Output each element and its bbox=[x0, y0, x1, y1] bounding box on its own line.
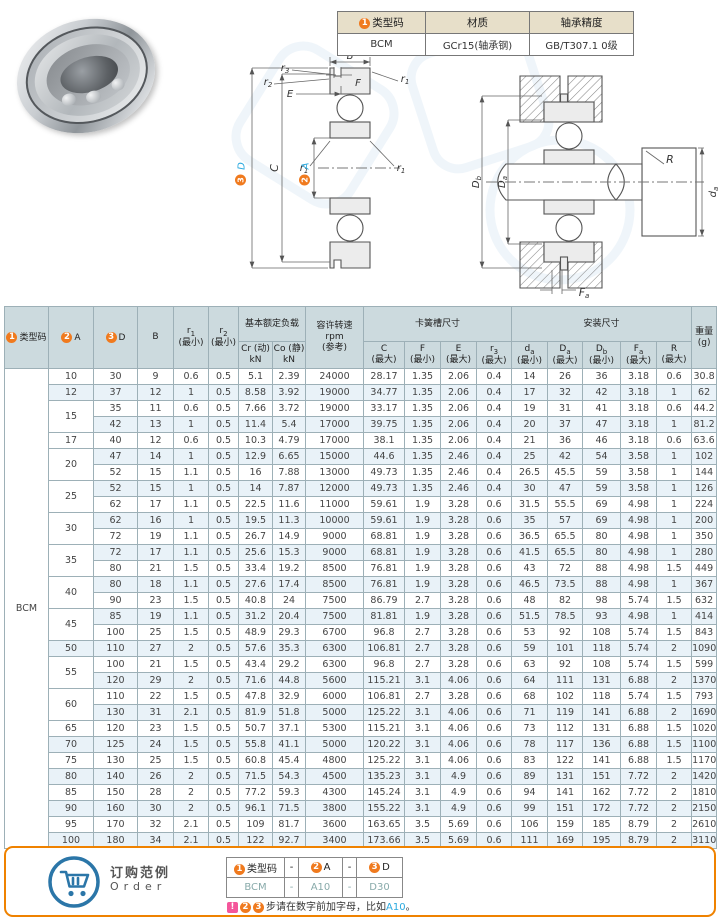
cell: 0.5 bbox=[209, 561, 239, 577]
cell: 0.4 bbox=[477, 417, 512, 433]
cell: 2150 bbox=[692, 801, 717, 817]
cell: 3600 bbox=[306, 817, 364, 833]
cell: 1 bbox=[657, 481, 692, 497]
order-value-dash: - bbox=[343, 878, 357, 898]
cell: 0.6 bbox=[477, 513, 512, 529]
cell: 1.5 bbox=[174, 689, 209, 705]
cell-a: 55 bbox=[49, 657, 94, 689]
col-header-f: F(最小) bbox=[405, 342, 441, 369]
cell: 1.9 bbox=[405, 513, 441, 529]
cell: 73.5 bbox=[548, 577, 583, 593]
cell: 47.8 bbox=[239, 689, 273, 705]
order-header-dash: - bbox=[285, 858, 299, 878]
badge-1-icon: 1 bbox=[359, 18, 370, 29]
spec-table-body: BCM103090.60.55.12.392400028.171.352.060… bbox=[5, 369, 717, 849]
cell: 0.5 bbox=[209, 433, 239, 449]
cell: 85 bbox=[94, 609, 138, 625]
info-header-material: 材质 bbox=[426, 12, 530, 34]
cell: 12 bbox=[138, 433, 174, 449]
cell: 72 bbox=[548, 561, 583, 577]
cell: 33.17 bbox=[364, 401, 405, 417]
cell: 43 bbox=[512, 561, 548, 577]
cell: 0.6 bbox=[657, 401, 692, 417]
cell: 0.5 bbox=[209, 737, 239, 753]
cell: 1.35 bbox=[405, 465, 441, 481]
svg-text:A: A bbox=[301, 162, 312, 170]
cell: 19000 bbox=[306, 385, 364, 401]
cell: 8.58 bbox=[239, 385, 273, 401]
dim-r1-label: r1 bbox=[401, 74, 410, 86]
cell: 350 bbox=[692, 529, 717, 545]
cell: 1690 bbox=[692, 705, 717, 721]
cell-a: 40 bbox=[49, 577, 94, 609]
order-value-code: BCM bbox=[227, 878, 285, 898]
order-panel: 订购范例 Order 1类型码 - 2A - 3D BCM - A10 - D3… bbox=[4, 846, 716, 917]
cell: 81.7 bbox=[273, 817, 306, 833]
cell-a: 80 bbox=[49, 769, 94, 785]
cell: 12.9 bbox=[239, 449, 273, 465]
cell: 92 bbox=[548, 657, 583, 673]
cell: 5.1 bbox=[239, 369, 273, 385]
cell: 0.5 bbox=[209, 385, 239, 401]
cell: 125 bbox=[94, 737, 138, 753]
cell: 54 bbox=[583, 449, 621, 465]
table-row: 52151.10.5167.881300049.731.352.460.426.… bbox=[5, 465, 717, 481]
cell: 10000 bbox=[306, 513, 364, 529]
cell: 1.1 bbox=[174, 577, 209, 593]
cell: 0.6 bbox=[477, 705, 512, 721]
table-row: 30621610.519.511.31000059.611.93.280.635… bbox=[5, 513, 717, 529]
cell: 17.4 bbox=[273, 577, 306, 593]
cell: 6.88 bbox=[621, 721, 657, 737]
badge-2-icon: 2 bbox=[240, 902, 251, 913]
cell: 30 bbox=[94, 369, 138, 385]
order-title-cn: 订购范例 bbox=[110, 862, 170, 881]
cell: 41 bbox=[583, 401, 621, 417]
cell: 131 bbox=[583, 721, 621, 737]
cell: 55.8 bbox=[239, 737, 273, 753]
cell: 0.6 bbox=[477, 593, 512, 609]
order-title-en: Order bbox=[110, 880, 166, 893]
table-row: 65120231.50.550.737.15300115.213.14.060.… bbox=[5, 721, 717, 737]
cell: 0.6 bbox=[657, 369, 692, 385]
cell: 1.5 bbox=[657, 753, 692, 769]
cell-a: 95 bbox=[49, 817, 94, 833]
cell: 22.5 bbox=[239, 497, 273, 513]
cell: 7.87 bbox=[273, 481, 306, 497]
cell: 53 bbox=[512, 625, 548, 641]
cell: 1 bbox=[174, 481, 209, 497]
cell: 27 bbox=[138, 641, 174, 657]
cell: 78.5 bbox=[548, 609, 583, 625]
cell: 130 bbox=[94, 753, 138, 769]
cell: 2.7 bbox=[405, 593, 441, 609]
table-row: 20471410.512.96.651500044.61.352.460.425… bbox=[5, 449, 717, 465]
cell: 92 bbox=[548, 625, 583, 641]
cell: 86.79 bbox=[364, 593, 405, 609]
cell: 80 bbox=[94, 577, 138, 593]
col-header-d: 3D bbox=[94, 307, 138, 369]
cell: 0.6 bbox=[477, 801, 512, 817]
cell: 2.7 bbox=[405, 689, 441, 705]
cell: 0.5 bbox=[209, 465, 239, 481]
cell: 4.06 bbox=[441, 753, 477, 769]
cell: 1.5 bbox=[657, 689, 692, 705]
cell: 57 bbox=[548, 513, 583, 529]
cell: 1.9 bbox=[405, 529, 441, 545]
cell-a: 25 bbox=[49, 481, 94, 513]
cell: 1.5 bbox=[657, 721, 692, 737]
cell: 6.88 bbox=[621, 737, 657, 753]
cell: 69 bbox=[583, 497, 621, 513]
cell: 125.22 bbox=[364, 753, 405, 769]
cell: 1 bbox=[174, 513, 209, 529]
cell: 2.39 bbox=[273, 369, 306, 385]
cell: 18 bbox=[138, 577, 174, 593]
table-row: 1740120.60.510.34.791700038.11.352.060.4… bbox=[5, 433, 717, 449]
cell: 6.88 bbox=[621, 753, 657, 769]
table-row: 421310.511.45.41700039.751.352.060.42037… bbox=[5, 417, 717, 433]
cell: 2 bbox=[174, 641, 209, 657]
cell: 48.9 bbox=[239, 625, 273, 641]
cell: 3.1 bbox=[405, 769, 441, 785]
cell: 1.5 bbox=[657, 737, 692, 753]
cell: 8500 bbox=[306, 561, 364, 577]
cell: 170 bbox=[94, 817, 138, 833]
cell: 36 bbox=[548, 433, 583, 449]
table-row: 130312.10.581.951.85000125.223.14.060.67… bbox=[5, 705, 717, 721]
badge-3-icon: 3 bbox=[369, 862, 380, 873]
cell: 1 bbox=[174, 449, 209, 465]
cell: 34.77 bbox=[364, 385, 405, 401]
cell: 3.5 bbox=[405, 817, 441, 833]
cell: 1.5 bbox=[657, 561, 692, 577]
cell: 0.6 bbox=[477, 721, 512, 737]
cell: 45.4 bbox=[273, 753, 306, 769]
cross-section-diagram: B F E r3 r2 r1 r1 r1 C 2 A 3 D bbox=[230, 50, 465, 300]
cell: 145.24 bbox=[364, 785, 405, 801]
cell: 0.6 bbox=[657, 433, 692, 449]
cell: 41.1 bbox=[273, 737, 306, 753]
cell: 76.81 bbox=[364, 577, 405, 593]
cell: 100 bbox=[94, 625, 138, 641]
cell: 5.4 bbox=[273, 417, 306, 433]
cell: 42 bbox=[583, 385, 621, 401]
cell: 59.61 bbox=[364, 513, 405, 529]
cell: 24 bbox=[138, 737, 174, 753]
cell: 0.5 bbox=[209, 593, 239, 609]
cell: 68.81 bbox=[364, 529, 405, 545]
cell-a: 90 bbox=[49, 801, 94, 817]
cell: 0.5 bbox=[209, 369, 239, 385]
cell: 130 bbox=[94, 705, 138, 721]
cell: 14.9 bbox=[273, 529, 306, 545]
cell: 52 bbox=[94, 465, 138, 481]
cell: 1020 bbox=[692, 721, 717, 737]
cell: 19.2 bbox=[273, 561, 306, 577]
cell: 9000 bbox=[306, 529, 364, 545]
cell: 26 bbox=[548, 369, 583, 385]
cell: 100 bbox=[94, 657, 138, 673]
table-row: 60110221.50.547.832.96000106.812.73.280.… bbox=[5, 689, 717, 705]
cell: 3.1 bbox=[405, 721, 441, 737]
cell: 3.1 bbox=[405, 705, 441, 721]
table-row: 55100211.50.543.429.2630096.82.73.280.66… bbox=[5, 657, 717, 673]
cell: 0.6 bbox=[477, 609, 512, 625]
info-table: 1类型码 材质 轴承精度 BCM GCr15(轴承钢) GB/T307.1 0级 bbox=[337, 11, 634, 56]
cell: 59.3 bbox=[273, 785, 306, 801]
cell: 0.6 bbox=[174, 369, 209, 385]
table-row: 70125241.50.555.841.15000120.223.14.060.… bbox=[5, 737, 717, 753]
cell: 2 bbox=[174, 769, 209, 785]
cell: 3.28 bbox=[441, 609, 477, 625]
cell: 71.6 bbox=[239, 673, 273, 689]
cell: 4.98 bbox=[621, 513, 657, 529]
cell: 2.1 bbox=[174, 817, 209, 833]
cell: 25 bbox=[138, 753, 174, 769]
cell: 5300 bbox=[306, 721, 364, 737]
cell: 0.5 bbox=[209, 785, 239, 801]
cell: 62 bbox=[94, 513, 138, 529]
table-row: 3572171.10.525.615.3900068.811.93.280.64… bbox=[5, 545, 717, 561]
cell: 38.1 bbox=[364, 433, 405, 449]
info-value-material: GCr15(轴承钢) bbox=[426, 34, 530, 56]
cell: 48 bbox=[512, 593, 548, 609]
cell: 7.72 bbox=[621, 769, 657, 785]
cell: 15000 bbox=[306, 449, 364, 465]
badge-1-icon: 1 bbox=[234, 864, 245, 875]
cell-a: 75 bbox=[49, 753, 94, 769]
cell: 0.6 bbox=[477, 817, 512, 833]
order-value-dash: - bbox=[285, 878, 299, 898]
cell: 44.2 bbox=[692, 401, 717, 417]
spec-table: 1类型码 2A 3D B r1(最小) r2(最小) 基本额定负载 容许转速rp… bbox=[4, 306, 717, 849]
col-header-Db: Db(最小) bbox=[583, 342, 621, 369]
cell: 0.5 bbox=[209, 577, 239, 593]
cell: 0.4 bbox=[477, 401, 512, 417]
cell: 7.72 bbox=[621, 801, 657, 817]
dim-R-label: R bbox=[666, 153, 674, 166]
cell: 1.35 bbox=[405, 369, 441, 385]
cell: 0.5 bbox=[209, 801, 239, 817]
cell: 0.6 bbox=[477, 753, 512, 769]
cell: 1.5 bbox=[657, 593, 692, 609]
cell: 50.7 bbox=[239, 721, 273, 737]
cell: 3.58 bbox=[621, 449, 657, 465]
cell: 17 bbox=[138, 497, 174, 513]
cell: 110 bbox=[94, 641, 138, 657]
col-header-b: B bbox=[138, 307, 174, 369]
order-value-a: A10 bbox=[299, 878, 343, 898]
col-header-a: 2A bbox=[49, 307, 94, 369]
cell: 72 bbox=[94, 545, 138, 561]
cell: 28.17 bbox=[364, 369, 405, 385]
cell: 5.74 bbox=[621, 641, 657, 657]
cell: 108 bbox=[583, 625, 621, 641]
cell: 7500 bbox=[306, 609, 364, 625]
cell: 3.28 bbox=[441, 561, 477, 577]
table-row: 501102720.557.635.36300106.812.73.280.65… bbox=[5, 641, 717, 657]
cell: 141 bbox=[583, 705, 621, 721]
cell: 0.5 bbox=[209, 769, 239, 785]
cell: 76.81 bbox=[364, 561, 405, 577]
cell: 632 bbox=[692, 593, 717, 609]
table-row: 72191.10.526.714.9900068.811.93.280.636.… bbox=[5, 529, 717, 545]
cell: 1.1 bbox=[174, 609, 209, 625]
cell: 6700 bbox=[306, 625, 364, 641]
cell-a: 17 bbox=[49, 433, 94, 449]
cell: 64 bbox=[512, 673, 548, 689]
cell: 140 bbox=[94, 769, 138, 785]
cell: 31 bbox=[138, 705, 174, 721]
group-header-snapring: 卡簧槽尺寸 bbox=[364, 307, 512, 342]
cell: 15.3 bbox=[273, 545, 306, 561]
cell: 96.8 bbox=[364, 625, 405, 641]
cell: 163.65 bbox=[364, 817, 405, 833]
col-header-Da: Da(最大) bbox=[548, 342, 583, 369]
cell: 1.5 bbox=[174, 721, 209, 737]
cell: 24 bbox=[273, 593, 306, 609]
cell: 99 bbox=[512, 801, 548, 817]
cell: 35 bbox=[94, 401, 138, 417]
cell: 9000 bbox=[306, 545, 364, 561]
cell: 2 bbox=[174, 673, 209, 689]
col-header-speed: 容许转速rpm(参考) bbox=[306, 307, 364, 369]
cell: 89 bbox=[512, 769, 548, 785]
cell: 7500 bbox=[306, 593, 364, 609]
cell: 17 bbox=[138, 545, 174, 561]
cell: 4.9 bbox=[441, 785, 477, 801]
cell: 26 bbox=[138, 769, 174, 785]
cell: 5.74 bbox=[621, 689, 657, 705]
cell: 5000 bbox=[306, 737, 364, 753]
cell: 1.5 bbox=[174, 625, 209, 641]
cell: 1 bbox=[174, 385, 209, 401]
cell: 6.88 bbox=[621, 673, 657, 689]
cell: 90 bbox=[94, 593, 138, 609]
cell: 0.5 bbox=[209, 545, 239, 561]
cell: 1090 bbox=[692, 641, 717, 657]
dim-da-label: da bbox=[708, 187, 720, 198]
cell: 40 bbox=[94, 433, 138, 449]
cell: 6.65 bbox=[273, 449, 306, 465]
cell: 35 bbox=[512, 513, 548, 529]
cell: 57.6 bbox=[239, 641, 273, 657]
cell: 47 bbox=[94, 449, 138, 465]
table-row: 851502820.577.259.34300145.243.14.90.694… bbox=[5, 785, 717, 801]
cell: 120.22 bbox=[364, 737, 405, 753]
cell: 7.66 bbox=[239, 401, 273, 417]
cell: 1100 bbox=[692, 737, 717, 753]
table-row: 12371210.58.583.921900034.771.352.060.41… bbox=[5, 385, 717, 401]
cell: 0.6 bbox=[477, 529, 512, 545]
cell: 159 bbox=[548, 817, 583, 833]
bearing-photo bbox=[12, 6, 162, 148]
cell: 118 bbox=[583, 641, 621, 657]
cell: 19.5 bbox=[239, 513, 273, 529]
cell: 81.2 bbox=[692, 417, 717, 433]
cell: 118 bbox=[583, 689, 621, 705]
badge-3-icon: 3 bbox=[253, 902, 264, 913]
cell: 2.46 bbox=[441, 465, 477, 481]
cell: 6.88 bbox=[621, 705, 657, 721]
cell: 15 bbox=[138, 465, 174, 481]
cell: 26.7 bbox=[239, 529, 273, 545]
cell: 25 bbox=[138, 625, 174, 641]
cell: 449 bbox=[692, 561, 717, 577]
cell: 2 bbox=[657, 801, 692, 817]
cell: 151 bbox=[548, 801, 583, 817]
cell: 4.06 bbox=[441, 705, 477, 721]
cell-a: 35 bbox=[49, 545, 94, 577]
cell: 0.5 bbox=[209, 721, 239, 737]
cell: 0.4 bbox=[477, 369, 512, 385]
cell: 80 bbox=[583, 545, 621, 561]
cell: 4500 bbox=[306, 769, 364, 785]
cell: 23 bbox=[138, 721, 174, 737]
order-note: !23步请在数字前加字母，比如A10。 bbox=[227, 898, 416, 913]
cell: 3.28 bbox=[441, 657, 477, 673]
table-row: 4585191.10.531.220.4750081.811.93.280.65… bbox=[5, 609, 717, 625]
cell: 59 bbox=[512, 641, 548, 657]
cell: 43.4 bbox=[239, 657, 273, 673]
cell: 19 bbox=[512, 401, 548, 417]
cell: 0.5 bbox=[209, 817, 239, 833]
cell: 1.35 bbox=[405, 481, 441, 497]
cell: 45.5 bbox=[548, 465, 583, 481]
info-header-typecode: 1类型码 bbox=[338, 12, 426, 34]
cell: 0.4 bbox=[477, 449, 512, 465]
cell: 77.2 bbox=[239, 785, 273, 801]
cell: 5600 bbox=[306, 673, 364, 689]
cell: 160 bbox=[94, 801, 138, 817]
cell: 71.5 bbox=[273, 801, 306, 817]
cell: 23 bbox=[138, 593, 174, 609]
cell: 16 bbox=[138, 513, 174, 529]
cell: 72 bbox=[94, 529, 138, 545]
cell: 8500 bbox=[306, 577, 364, 593]
dim-r2-label: r2 bbox=[264, 77, 273, 89]
cell: 1.9 bbox=[405, 545, 441, 561]
cell: 4.98 bbox=[621, 497, 657, 513]
cell: 125.22 bbox=[364, 705, 405, 721]
cell-a: 20 bbox=[49, 449, 94, 481]
cell: 2 bbox=[174, 785, 209, 801]
cell: 30 bbox=[138, 801, 174, 817]
cell: 185 bbox=[583, 817, 621, 833]
cell: 2.7 bbox=[405, 641, 441, 657]
cell: 46 bbox=[583, 433, 621, 449]
cell: 1 bbox=[657, 417, 692, 433]
cell: 224 bbox=[692, 497, 717, 513]
cell: 115.21 bbox=[364, 673, 405, 689]
cell: 1810 bbox=[692, 785, 717, 801]
dim-r3-label: r3 bbox=[281, 63, 290, 75]
cell: 20 bbox=[512, 417, 548, 433]
cell: 135.23 bbox=[364, 769, 405, 785]
cell: 3.1 bbox=[405, 737, 441, 753]
cell: 1 bbox=[657, 385, 692, 401]
cell: 13000 bbox=[306, 465, 364, 481]
table-row: 62171.10.522.511.61100059.611.93.280.631… bbox=[5, 497, 717, 513]
cell: 3.18 bbox=[621, 433, 657, 449]
cell: 31.2 bbox=[239, 609, 273, 625]
badge-2-icon: 2 bbox=[311, 862, 322, 873]
col-header-cr: Cr (动)kN bbox=[239, 342, 273, 369]
cell: 0.4 bbox=[477, 385, 512, 401]
cell: 102 bbox=[692, 449, 717, 465]
cell: 3.1 bbox=[405, 801, 441, 817]
